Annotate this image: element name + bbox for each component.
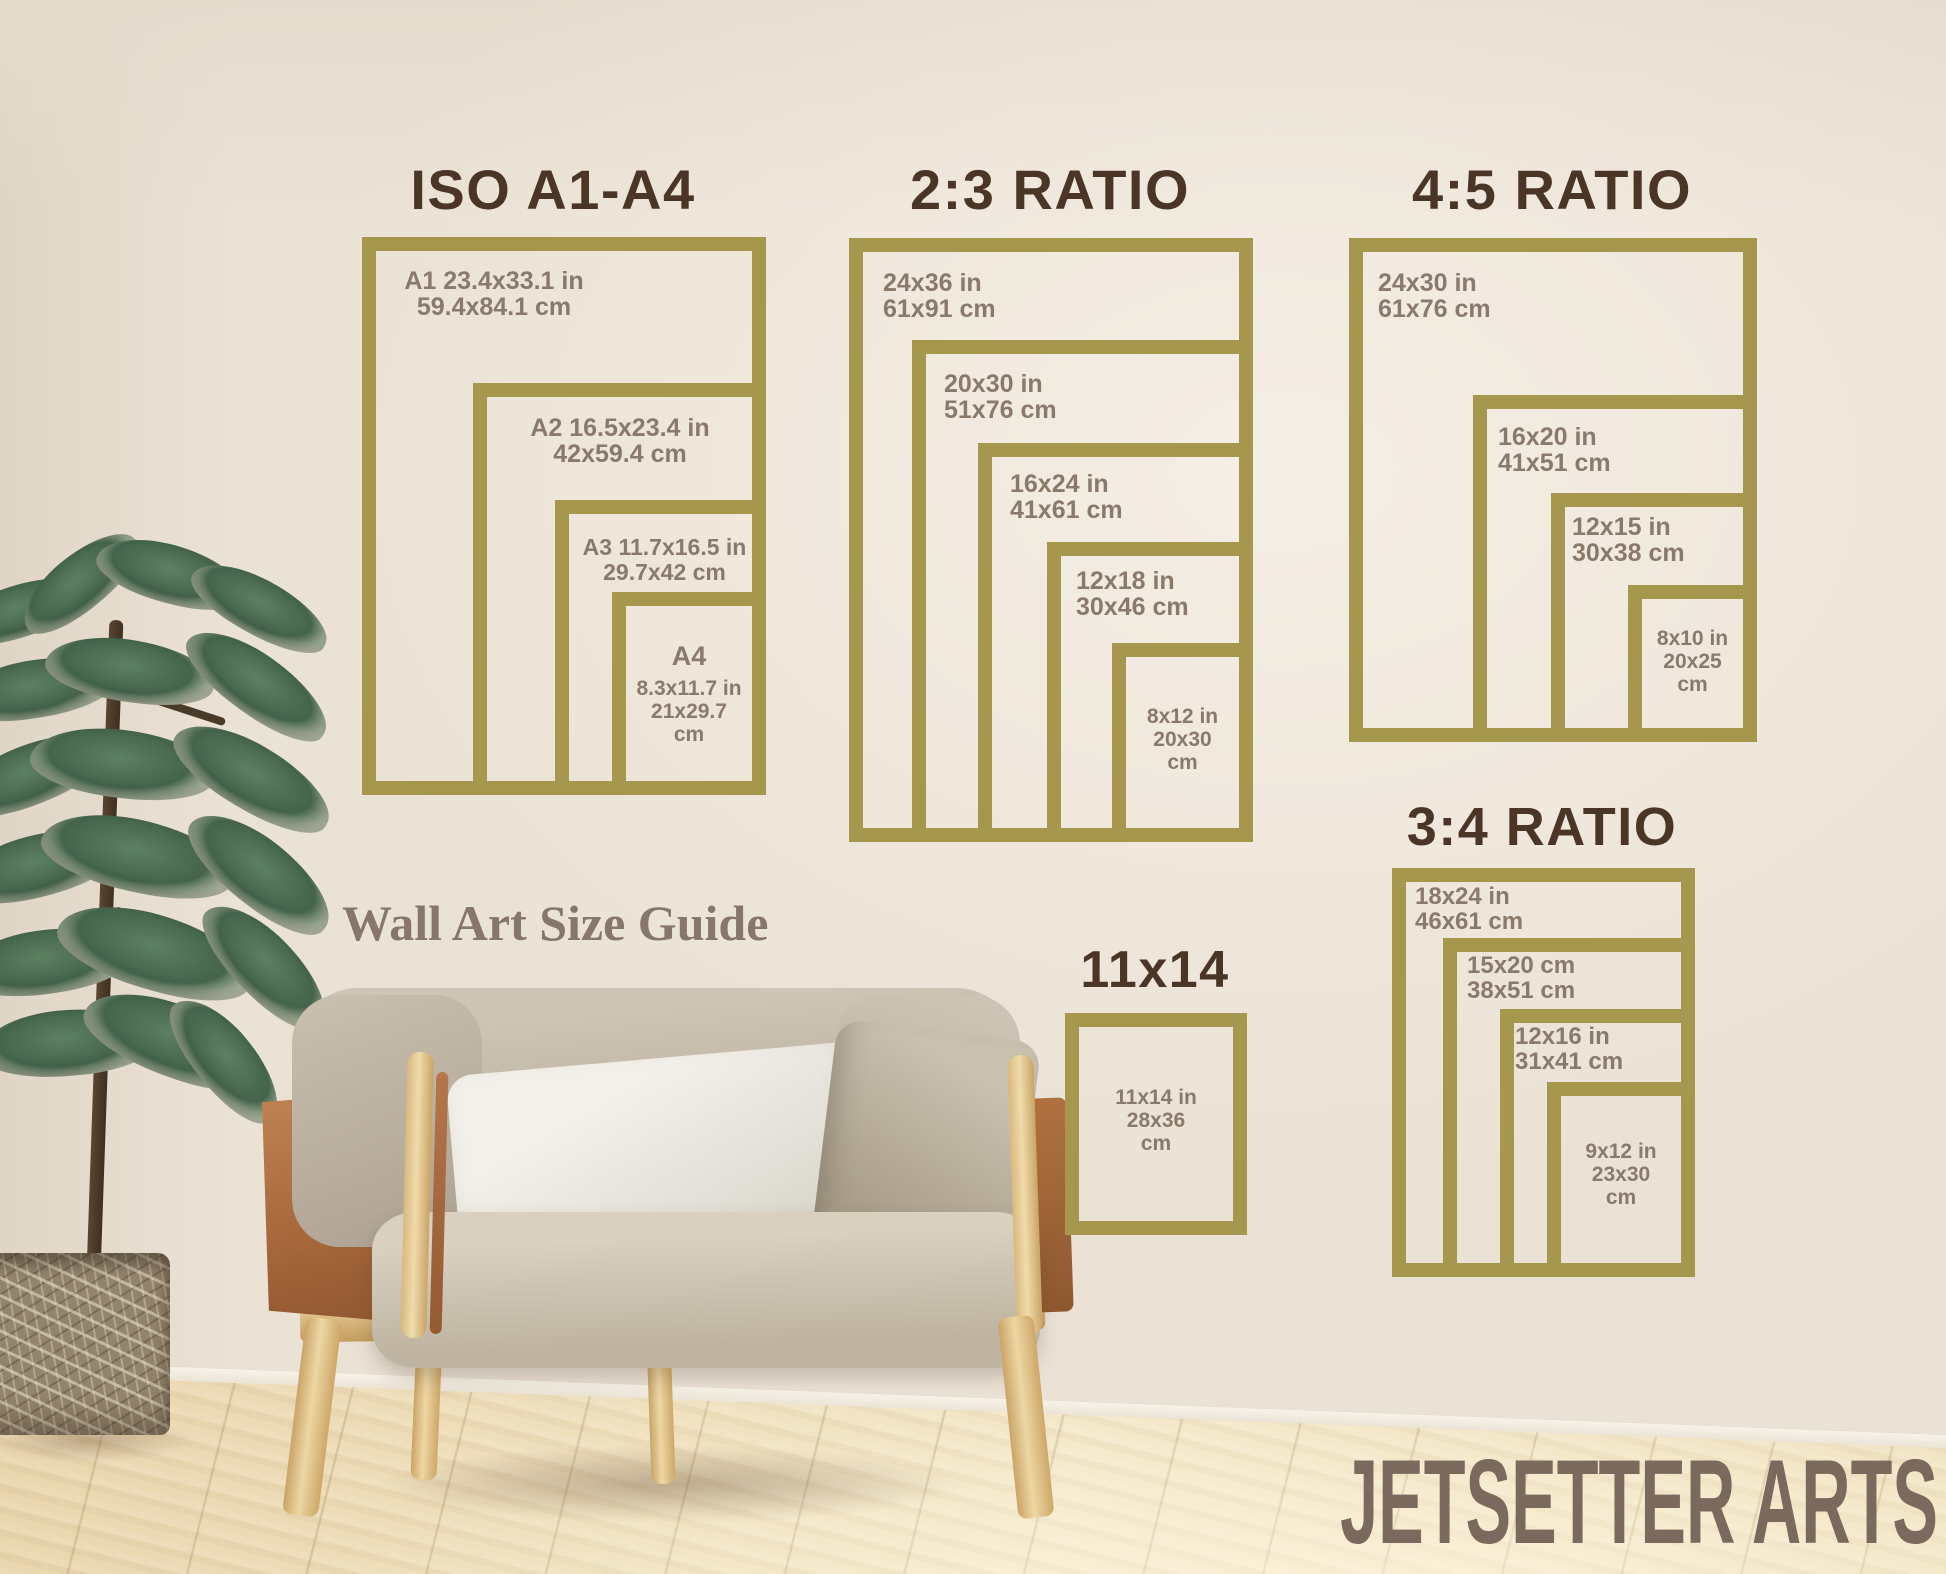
section-title: 3:4 RATIO: [1342, 800, 1742, 854]
frame-label-11x14: 11x14 in 28x36 cm: [1065, 1086, 1247, 1155]
size-line: 30x46 cm: [1076, 594, 1189, 620]
size-line: 51x76 cm: [944, 397, 1057, 423]
frame-label-16x20: 16x20 in 41x51 cm: [1498, 424, 1611, 476]
size-line: 38x51 cm: [1467, 978, 1575, 1003]
frame-label-15x20: 15x20 cm 38x51 cm: [1467, 953, 1575, 1003]
frame-label-24x36: 24x36 in 61x91 cm: [883, 270, 996, 322]
section-title: 4:5 RATIO: [1352, 162, 1752, 218]
size-line: cm: [1065, 1132, 1247, 1155]
frame-label-24x30: 24x30 in 61x76 cm: [1378, 270, 1491, 322]
size-line: 41x61 cm: [1010, 497, 1123, 523]
size-line: 12x18 in: [1076, 568, 1189, 594]
size-line: 23x30: [1547, 1163, 1695, 1186]
size-line: 20x25: [1628, 650, 1757, 673]
frame-label-a4: A4 8.3x11.7 in 21x29.7 cm: [614, 645, 764, 746]
size-line: 30x38 cm: [1572, 540, 1685, 566]
size-line: cm: [1112, 751, 1253, 774]
size-line: 20x30 in: [944, 371, 1057, 397]
size-line: 12x16 in: [1515, 1024, 1623, 1049]
size-line: 41x51 cm: [1498, 450, 1611, 476]
room-scene: ISO A1-A4 A1 23.4x33.1 in 59.4x84.1 cm A…: [0, 0, 1946, 1574]
size-line: 8x10 in: [1628, 627, 1757, 650]
frame-label-8x10: 8x10 in 20x25 cm: [1628, 627, 1757, 696]
frame-label-18x24: 18x24 in 46x61 cm: [1415, 884, 1523, 934]
size-line: cm: [614, 723, 764, 746]
frame-label-a2: A2 16.5x23.4 in 42x59.4 cm: [505, 415, 735, 467]
size-line: 8x12 in: [1112, 705, 1253, 728]
size-line: A1 23.4x33.1 in: [384, 268, 604, 294]
size-line: A4: [614, 645, 764, 668]
size-line: 46x61 cm: [1415, 909, 1523, 934]
frame-label-12x15: 12x15 in 30x38 cm: [1572, 514, 1685, 566]
section-title: 11x14: [1005, 944, 1305, 996]
size-line: 24x30 in: [1378, 270, 1491, 296]
section-title: 2:3 RATIO: [850, 162, 1250, 218]
section-title: ISO A1-A4: [353, 162, 753, 218]
size-line: 42x59.4 cm: [505, 441, 735, 467]
size-line: 8.3x11.7 in: [614, 677, 764, 700]
size-line: 24x36 in: [883, 270, 996, 296]
size-line: 18x24 in: [1415, 884, 1523, 909]
frame-label-8x12: 8x12 in 20x30 cm: [1112, 705, 1253, 774]
size-line: A2 16.5x23.4 in: [505, 415, 735, 441]
size-line: 61x91 cm: [883, 296, 996, 322]
size-line: 16x20 in: [1498, 424, 1611, 450]
frame-label-a3: A3 11.7x16.5 in 29.7x42 cm: [562, 535, 767, 585]
size-line: 16x24 in: [1010, 471, 1123, 497]
size-line: 59.4x84.1 cm: [384, 294, 604, 320]
size-line: 61x76 cm: [1378, 296, 1491, 322]
frame-label-16x24: 16x24 in 41x61 cm: [1010, 471, 1123, 523]
size-line: 28x36: [1065, 1109, 1247, 1132]
brand-watermark: JETSETTER ARTS: [1340, 1442, 1938, 1562]
size-line: 12x15 in: [1572, 514, 1685, 540]
frame-label-12x18: 12x18 in 30x46 cm: [1076, 568, 1189, 620]
size-line: cm: [1628, 673, 1757, 696]
size-line: A3 11.7x16.5 in: [562, 535, 767, 560]
size-line: cm: [1547, 1186, 1695, 1209]
size-line: 15x20 cm: [1467, 953, 1575, 978]
frame-label-a1: A1 23.4x33.1 in 59.4x84.1 cm: [384, 268, 604, 320]
size-line: 11x14 in: [1065, 1086, 1247, 1109]
frame-label-20x30: 20x30 in 51x76 cm: [944, 371, 1057, 423]
size-line: 20x30: [1112, 728, 1253, 751]
size-line: 21x29.7: [614, 700, 764, 723]
frame-label-9x12: 9x12 in 23x30 cm: [1547, 1140, 1695, 1209]
frame-label-12x16: 12x16 in 31x41 cm: [1515, 1024, 1623, 1074]
size-line: 31x41 cm: [1515, 1049, 1623, 1074]
guide-headline: Wall Art Size Guide: [342, 894, 768, 952]
size-line: 29.7x42 cm: [562, 560, 767, 585]
size-line: 9x12 in: [1547, 1140, 1695, 1163]
